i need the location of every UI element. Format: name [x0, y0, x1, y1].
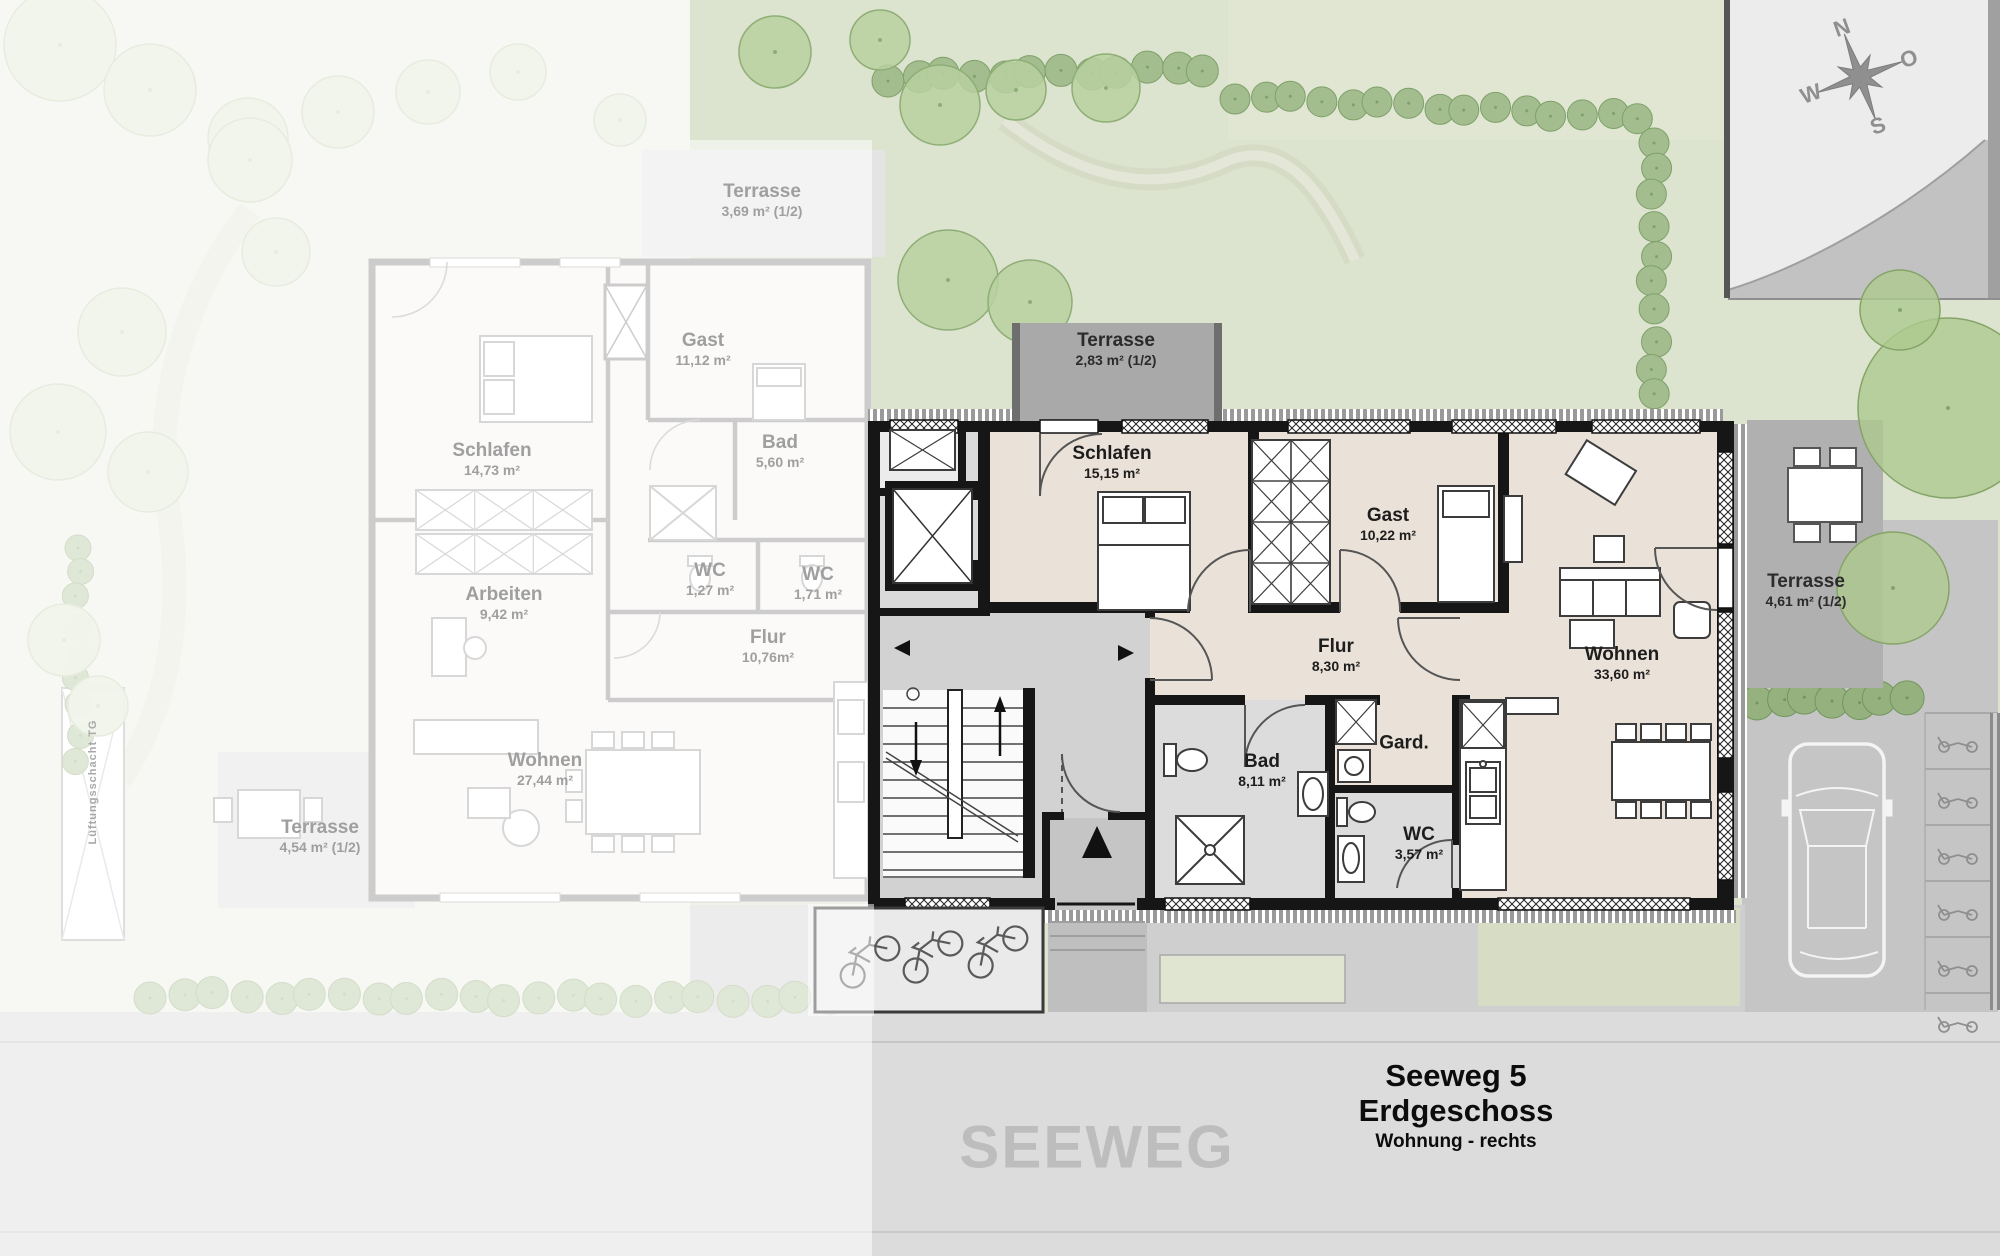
fade-overlay-left — [0, 0, 872, 1256]
floorplan-canvas: Terrasse 2,83 m² (1/2) Schlafen 15,15 m²… — [0, 0, 2000, 1256]
site-plan-drawing — [0, 0, 2000, 1256]
